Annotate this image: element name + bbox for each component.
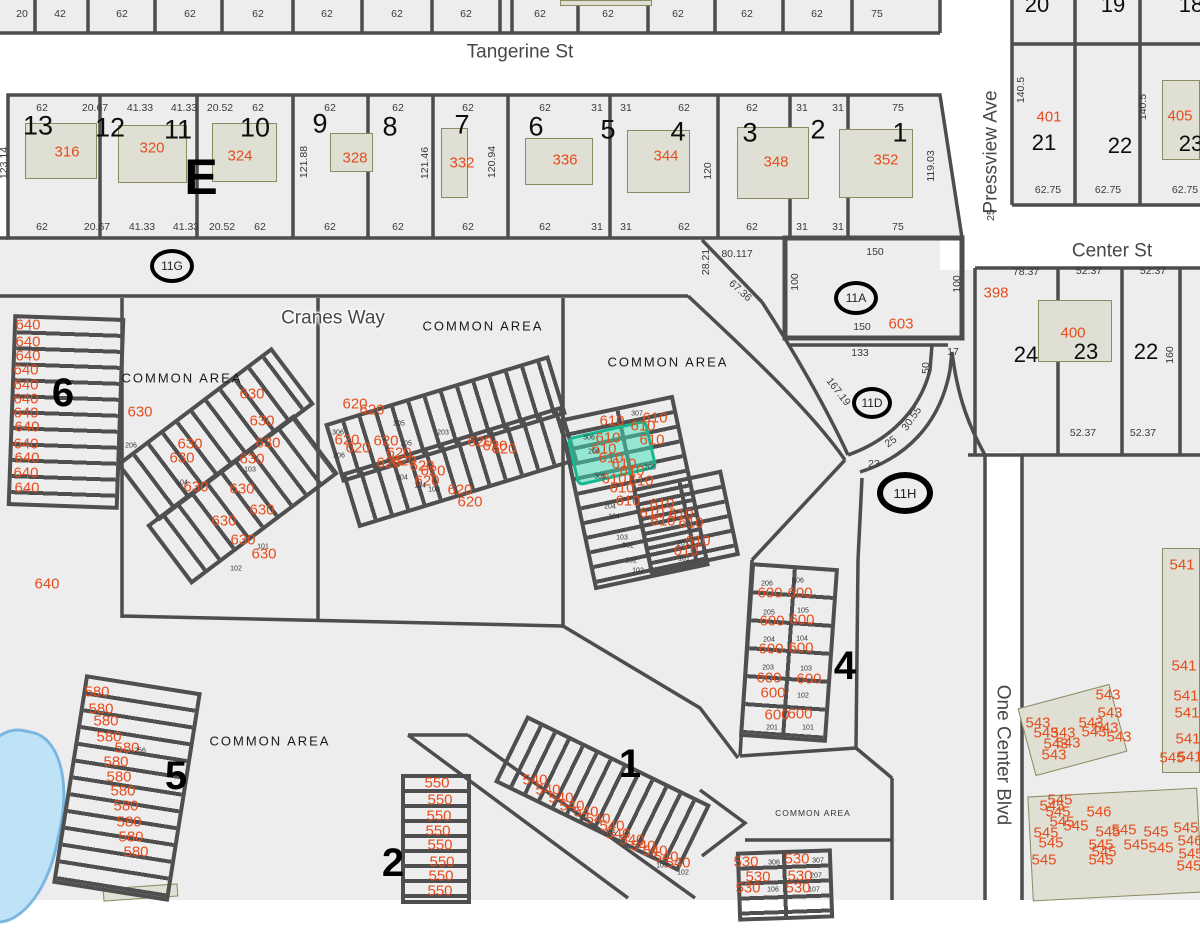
parcel-number: 630 [239, 452, 264, 467]
lot-number: 11 [164, 117, 192, 144]
dimension-label: 52.37 [1130, 428, 1156, 439]
parcel-number: 580 [103, 755, 128, 770]
unit-number: 306 [583, 435, 595, 442]
parcel-number: 316 [54, 145, 79, 160]
dimension-label: 62 [741, 9, 753, 20]
dimension-label: 50 [921, 362, 932, 374]
parcel-number: 640 [13, 363, 38, 378]
dimension-label: 62 [321, 9, 333, 20]
unit-number: 104 [414, 483, 426, 490]
marker-label: 11H [894, 486, 917, 501]
dimension-label: 120 [703, 162, 714, 180]
unit-number: 103 [616, 535, 628, 542]
parcel-number: 640 [14, 420, 39, 435]
parcel-number: 620 [345, 441, 370, 456]
dimension-label: 31 [832, 222, 844, 233]
block-number: 1 [619, 744, 641, 784]
dimension-label: 62 [116, 9, 128, 20]
lot-number: 21 [1032, 132, 1056, 154]
marker-label: 11D [861, 396, 882, 410]
dimension-label: 62.75 [1095, 185, 1121, 196]
dimension-label: 25 [986, 209, 997, 221]
dimension-label: 80.117 [721, 249, 752, 260]
dimension-label: 150 [866, 247, 884, 258]
dimension-label: 140.5 [1016, 77, 1027, 103]
parcel-number: 600 [760, 686, 785, 701]
dimension-label: 62 [254, 222, 266, 233]
unit-number: 103 [656, 863, 668, 870]
dimension-label: 41.33 [173, 222, 199, 233]
parcel-number: 540 [665, 856, 690, 871]
unit-number: 102 [797, 693, 809, 700]
dimension-label: 52.37 [1140, 266, 1166, 277]
unit-number: 206 [604, 831, 616, 838]
dimension-label: 62 [746, 103, 758, 114]
dimension-label: 150 [853, 322, 871, 333]
unit-number: 105 [400, 441, 412, 448]
parcel-number: 640 [14, 451, 39, 466]
unit-number: 107 [808, 887, 820, 894]
parcel-number: 545 [1088, 853, 1113, 868]
parcel-number: 640 [15, 318, 40, 333]
lot-number: 6 [528, 114, 543, 141]
common-area-label: COMMON AREA [122, 372, 243, 385]
dimension-label: 17 [947, 347, 959, 358]
parcel-number: 603 [888, 317, 913, 332]
dimension-label: 121.88 [299, 146, 310, 178]
marker-label: 11A [846, 291, 866, 305]
one-center-blvd-band [985, 452, 1022, 900]
parcel-number: 546 [1086, 805, 1111, 820]
parcel-number: 550 [427, 838, 452, 853]
block-number: 2 [382, 843, 404, 883]
house-building [560, 0, 652, 6]
parcel-number: 545 [1063, 819, 1088, 834]
dimension-label: 62 [391, 9, 403, 20]
unit-number: 205 [644, 465, 656, 472]
parcel-number: 545 [1031, 853, 1056, 868]
dimension-label: 31 [620, 103, 632, 114]
parcel-number: 545 [1173, 821, 1198, 836]
unit-number: 203 [762, 665, 774, 672]
unit-number: 206 [333, 453, 345, 460]
dimension-label: 20.52 [209, 222, 235, 233]
unit-number: 206 [761, 581, 773, 588]
lot-number: 5 [600, 117, 615, 144]
map-marker-11D: 11D [852, 387, 892, 419]
dimension-label: 100 [790, 273, 801, 291]
parcel-number: 336 [552, 153, 577, 168]
unit-number: 101 [678, 556, 690, 563]
dimension-label: 52.37 [1076, 266, 1102, 277]
unit-number: 101 [802, 725, 814, 732]
unit-number: 302 [622, 543, 634, 550]
parcel-number: 580 [123, 845, 148, 860]
dimension-label: 62 [460, 9, 472, 20]
unit-number: 104 [608, 514, 620, 521]
map-root[interactable]: { "streets":{ "tangerine":{"label":"Tang… [0, 0, 1200, 900]
parcel-number: 630 [249, 414, 274, 429]
unit-number: 102 [230, 566, 242, 573]
dimension-label: 62 [678, 222, 690, 233]
dimension-label: 62 [184, 9, 196, 20]
unit-number: 203 [437, 430, 449, 437]
parcel-number: 580 [110, 784, 135, 799]
dimension-label: 52.37 [1070, 428, 1096, 439]
unit-number: 204 [396, 475, 408, 482]
unit-number: 256 [134, 748, 146, 755]
unit-number: 305 [594, 474, 606, 481]
lot-number: 19 [1101, 0, 1125, 16]
unit-number: 204 [604, 504, 616, 511]
parcel-number: 550 [426, 809, 451, 824]
parcel-number: 600 [787, 586, 812, 601]
dimension-label: 62 [672, 9, 684, 20]
parcel-number: 580 [113, 799, 138, 814]
parcel-number: 600 [787, 707, 812, 722]
unit-number: 106 [792, 578, 804, 585]
parcel-number: 328 [342, 151, 367, 166]
parcel-number: 630 [169, 451, 194, 466]
lot-number: 8 [382, 114, 397, 141]
unit-number: 104 [796, 636, 808, 643]
lot-number: 22 [1108, 135, 1132, 157]
dimension-label: 62.75 [1172, 185, 1198, 196]
dimension-label: 78.37 [1013, 267, 1039, 278]
parcel-number: 541 [1171, 659, 1196, 674]
parcel-number: 630 [255, 436, 280, 451]
lot-number: 22 [1134, 341, 1158, 363]
unit-number: 105 [797, 608, 809, 615]
unit-number: 103 [800, 666, 812, 673]
dimension-label: 28.21 [701, 249, 712, 275]
lot-number: 13 [23, 113, 53, 140]
parcel-number: 348 [763, 155, 788, 170]
lot-number: 2 [810, 117, 825, 144]
block-number: 4 [834, 646, 856, 686]
unit-number: 204 [763, 637, 775, 644]
common-area-label: COMMON AREA [423, 320, 544, 333]
map-marker-11G: 11G [150, 249, 194, 283]
street-label-center-st: Center St [1072, 242, 1152, 261]
parcel-number: 600 [756, 671, 781, 686]
dimension-label: 100 [952, 275, 963, 293]
street-label-pressview-ave: Pressview Ave [982, 90, 1001, 213]
dimension-label: 20 [16, 9, 28, 20]
parcel-number: 545 [1148, 841, 1173, 856]
lot-number: 23 [1074, 341, 1098, 363]
lot-number: 10 [240, 115, 270, 142]
lot-number: 4 [670, 119, 685, 146]
dimension-label: 121.46 [420, 147, 431, 179]
parcel-number: 600 [764, 708, 789, 723]
dimension-label: 133 [851, 348, 869, 359]
lot-number: 23 [1179, 133, 1200, 155]
parcel-number: 630 [249, 503, 274, 518]
unit-number: 205 [393, 421, 405, 428]
parcel-number: 580 [93, 714, 118, 729]
unit-number: 307 [812, 858, 824, 865]
parcel-number: 640 [14, 481, 39, 496]
parcel-number: 600 [796, 672, 821, 687]
parcel-number: 640 [13, 466, 38, 481]
dimension-label: 23 [868, 459, 880, 470]
dimension-label: 62 [678, 103, 690, 114]
parcel-number: 541 [1174, 706, 1199, 721]
parcel-number: 530 [735, 881, 760, 896]
parcel-number: 600 [788, 641, 813, 656]
unit-number: 103 [244, 467, 256, 474]
dimension-label: 62 [539, 222, 551, 233]
parcel-number: 332 [449, 156, 474, 171]
parcel-number: 344 [653, 149, 678, 164]
dimension-label: 140.5 [1138, 94, 1149, 120]
common-area-label: COMMON AREA [608, 356, 729, 369]
dimension-label: 123.14 [0, 147, 9, 179]
dimension-label: 62 [392, 222, 404, 233]
parcel-number: 600 [758, 642, 783, 657]
unit-number: 102 [632, 568, 644, 575]
unit-number: 307 [631, 411, 643, 418]
lot-number: 20 [1025, 0, 1049, 16]
parcel-number: 541 [1169, 558, 1194, 573]
parcel-number: 401 [1036, 110, 1061, 125]
unit-number: 206 [125, 443, 137, 450]
lot-number: 3 [742, 120, 757, 147]
parcel-number: 550 [427, 884, 452, 899]
parcel-number: 324 [227, 149, 252, 164]
parcel-number: 545 [1038, 836, 1063, 851]
map-marker-11H: 11H [877, 472, 933, 514]
parcel-number: 640 [34, 577, 59, 592]
parcel-number: 530 [784, 852, 809, 867]
lot-number: 18 [1179, 0, 1200, 16]
dimension-label: 31 [796, 222, 808, 233]
parcel-number: 600 [789, 613, 814, 628]
dimension-label: 62 [252, 9, 264, 20]
parcel-number: 630 [211, 514, 236, 529]
common-area-label: COMMON AREA [210, 735, 331, 748]
marker-label: 11G [161, 259, 183, 273]
parcel-number: 580 [84, 685, 109, 700]
parcel-number: 545 [1176, 859, 1200, 874]
parcel-number: 543 [1041, 748, 1066, 763]
unit-number: 106 [767, 887, 779, 894]
unit-number: 206 [588, 449, 600, 456]
parcel-number: 530 [733, 855, 758, 870]
unit-number: 306 [768, 860, 780, 867]
parcel-number: 580 [116, 815, 141, 830]
dimension-label: 120.94 [487, 146, 498, 178]
unit-number: 201 [766, 725, 778, 732]
parcel-number: 398 [983, 286, 1008, 301]
block-letter: E [184, 152, 217, 202]
parcel-number: 550 [428, 869, 453, 884]
parcel-number: 610 [639, 433, 664, 448]
parcel-number: 541 [1175, 732, 1200, 747]
dimension-label: 41.33 [171, 103, 197, 114]
block-number: 6 [52, 373, 74, 413]
dimension-label: 75 [892, 222, 904, 233]
parcel-number: 530 [785, 881, 810, 896]
dimension-label: 31 [591, 103, 603, 114]
parcel-number: 545 [1159, 751, 1184, 766]
unit-number: 103 [428, 487, 440, 494]
dimension-label: 31 [591, 222, 603, 233]
street-label-one-center-blvd: One Center Blvd [994, 685, 1013, 825]
lot-number: 12 [95, 115, 125, 142]
parcel-number: 610 [650, 514, 675, 529]
lot-number: 24 [1014, 344, 1038, 366]
unit-number: 101 [257, 544, 269, 551]
dimension-label: 31 [620, 222, 632, 233]
parcel-number: 630 [127, 405, 152, 420]
parcel-number: 543 [1095, 688, 1120, 703]
dimension-label: 42 [54, 9, 66, 20]
dimension-label: 62 [36, 222, 48, 233]
parcel-number: 320 [139, 141, 164, 156]
parcel-number: 545 [1111, 823, 1136, 838]
parcel-number: 620 [359, 403, 384, 418]
dimension-label: 31 [796, 103, 808, 114]
dimension-label: 75 [871, 9, 883, 20]
parcel-number: 600 [757, 586, 782, 601]
parcel-number: 580 [118, 830, 143, 845]
unit-number: 201 [677, 541, 689, 548]
street-label-cranes-way: Cranes Way [281, 309, 385, 328]
parcel-number: 620 [457, 495, 482, 510]
dimension-label: 41.33 [129, 222, 155, 233]
parcel-number: 610 [678, 516, 703, 531]
dimension-label: 20.67 [84, 222, 110, 233]
parcel-number: 550 [427, 793, 452, 808]
map-marker-11A: 11A [834, 281, 878, 315]
dimension-label: 41.33 [127, 103, 153, 114]
dimension-label: 62 [534, 9, 546, 20]
dimension-label: 62 [602, 9, 614, 20]
parcel-number: 620 [491, 442, 516, 457]
unit-number: 202 [625, 558, 637, 565]
lot-number: 7 [454, 112, 469, 139]
parcel-number: 405 [1167, 109, 1192, 124]
unit-number: 306 [332, 430, 344, 437]
parcel-number: 352 [873, 153, 898, 168]
dimension-label: 62 [811, 9, 823, 20]
dimension-label: 62.75 [1035, 185, 1061, 196]
lot-number: 1 [892, 120, 907, 147]
lot-number: 9 [312, 111, 327, 138]
parcel-number: 543 [1106, 730, 1131, 745]
parcel-number: 630 [229, 482, 254, 497]
dimension-label: 20.52 [207, 103, 233, 114]
dimension-label: 62 [324, 222, 336, 233]
parcel-number: 541 [1173, 689, 1198, 704]
parcel-number: 610 [599, 414, 624, 429]
parcel-number: 610 [615, 494, 640, 509]
common-area-label: COMMON AREA [775, 809, 851, 818]
street-label-tangerine: Tangerine St [467, 43, 574, 62]
parcel-number: 545 [1123, 838, 1148, 853]
unit-number: 205 [763, 610, 775, 617]
unit-number: 104 [176, 480, 188, 487]
parcel-number: 630 [239, 387, 264, 402]
unit-number: 207 [810, 873, 822, 880]
dimension-label: 62 [746, 222, 758, 233]
dimension-label: 160 [1165, 346, 1176, 364]
dimension-label: 119.03 [926, 150, 937, 181]
parcel-number: 550 [424, 776, 449, 791]
unit-number: 102 [677, 870, 689, 877]
dimension-label: 75 [892, 103, 904, 114]
dimension-label: 31 [832, 103, 844, 114]
block-number: 5 [165, 756, 187, 796]
dimension-label: 62 [462, 222, 474, 233]
